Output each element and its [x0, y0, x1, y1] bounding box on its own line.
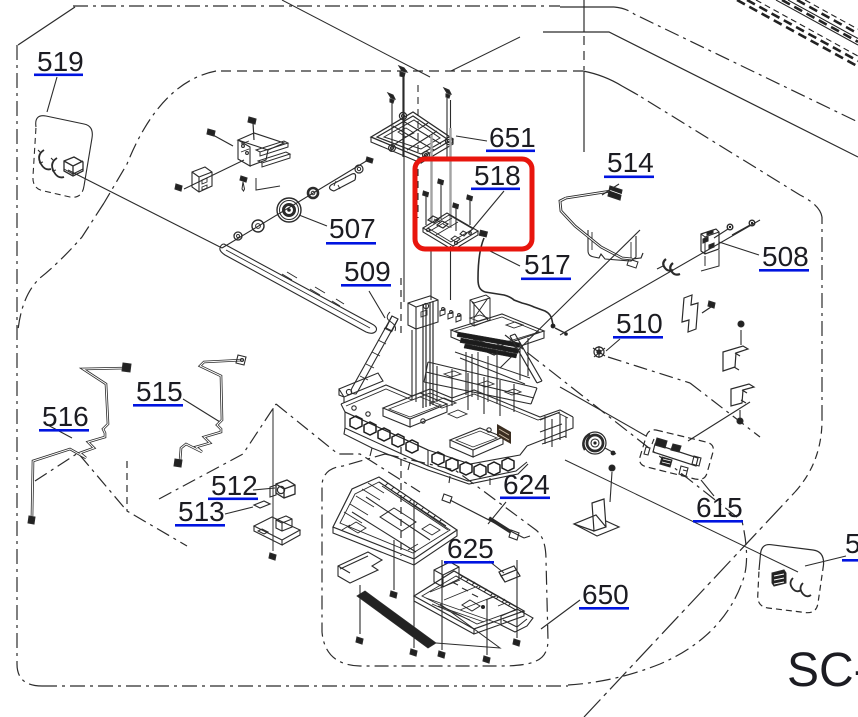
svg-text:513: 513 — [178, 496, 225, 527]
svg-text:650: 650 — [582, 579, 629, 610]
svg-text:519: 519 — [37, 46, 84, 77]
svg-text:508: 508 — [762, 241, 809, 272]
svg-text:507: 507 — [329, 213, 376, 244]
svg-text:509: 509 — [344, 256, 391, 287]
svg-text:517: 517 — [524, 249, 571, 280]
svg-text:518: 518 — [474, 160, 521, 191]
svg-text:516: 516 — [42, 401, 89, 432]
svg-text:615: 615 — [696, 492, 743, 523]
svg-text:SC-: SC- — [787, 644, 858, 697]
svg-text:651: 651 — [489, 122, 536, 153]
svg-text:625: 625 — [447, 533, 494, 564]
svg-text:514: 514 — [607, 147, 654, 178]
svg-text:51: 51 — [845, 528, 858, 559]
svg-text:510: 510 — [616, 308, 663, 339]
svg-text:515: 515 — [136, 376, 183, 407]
svg-text:624: 624 — [503, 469, 550, 500]
